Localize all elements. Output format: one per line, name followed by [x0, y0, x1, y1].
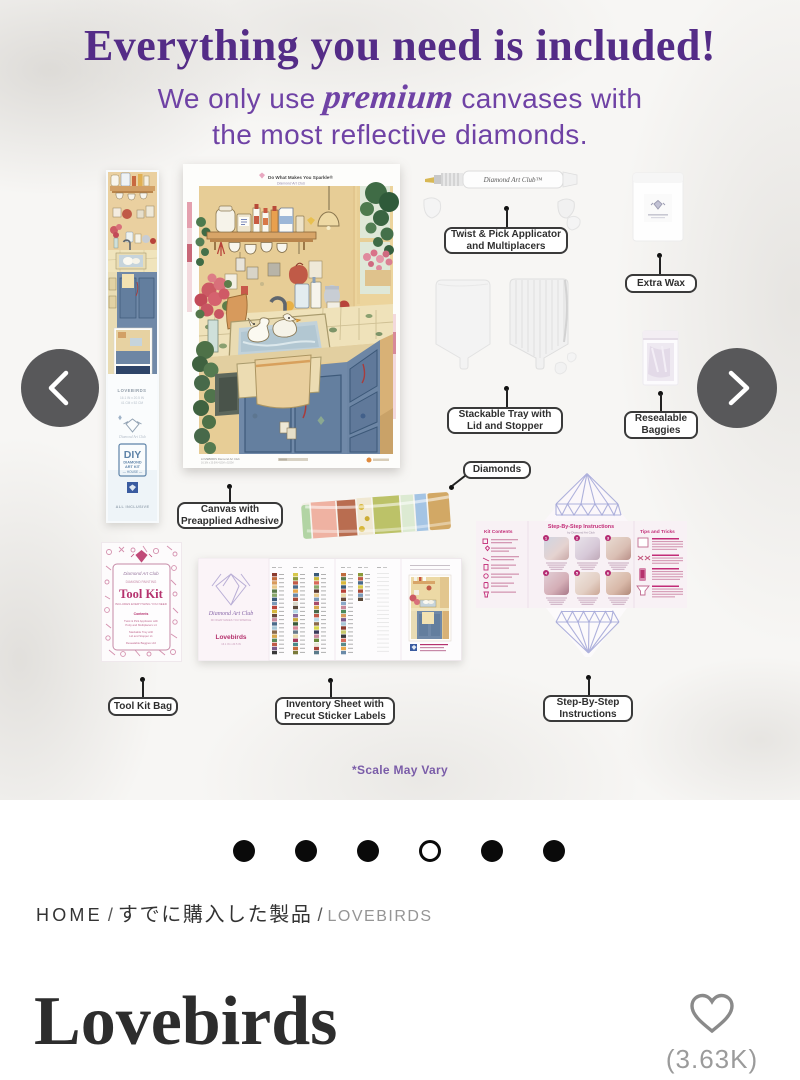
- svg-text:Step-By-Step Instructions: Step-By-Step Instructions: [548, 524, 614, 530]
- svg-text:Diamond Art Club: Diamond Art Club: [118, 435, 146, 439]
- svg-text:DIY: DIY: [124, 449, 142, 461]
- svg-text:LOVEBIRDS Diamond Art Club: LOVEBIRDS Diamond Art Club: [201, 457, 240, 461]
- svg-text:Tool Kit: Tool Kit: [119, 587, 163, 601]
- svg-text:Do What Makes You Sparkle®: Do What Makes You Sparkle®: [268, 174, 333, 180]
- svg-text:ART KIT: ART KIT: [125, 465, 141, 469]
- svg-text:DIAMOND PAINTING: DIAMOND PAINTING: [126, 580, 157, 584]
- svg-text:Contents: Contents: [134, 612, 149, 616]
- svg-text:Kit Contents: Kit Contents: [484, 529, 513, 535]
- svg-text:16.1 IN x 20.5 IN: 16.1 IN x 20.5 IN: [120, 396, 145, 400]
- svg-text:Diamond Art Club: Diamond Art Club: [123, 571, 159, 576]
- svg-text:Lid and Stopper x1: Lid and Stopper x1: [129, 634, 153, 638]
- svg-text:16.1IN x 20.5IN 41CM x 52CM: 16.1IN x 20.5IN 41CM x 52CM: [201, 462, 234, 465]
- svg-text:LOVEBIRDS: LOVEBIRDS: [118, 388, 147, 393]
- svg-text:ALL INCLUSIVE: ALL INCLUSIVE: [116, 505, 150, 509]
- svg-text:Diamond Art Club: Diamond Art Club: [208, 611, 254, 617]
- svg-text:Resealable Baggies x10: Resealable Baggies x10: [126, 641, 157, 645]
- svg-text:DO WHAT MAKES YOU SPARKLE: DO WHAT MAKES YOU SPARKLE: [211, 618, 252, 622]
- svg-text:Diamond Art Club™: Diamond Art Club™: [483, 176, 543, 184]
- svg-text:Lovebirds: Lovebirds: [215, 634, 246, 641]
- svg-text:Putty and Multiplacers x4: Putty and Multiplacers x4: [125, 623, 157, 627]
- svg-text:— HOUSE —: — HOUSE —: [123, 470, 143, 474]
- svg-text:INCLUDES EVERYTHING YOU NEED: INCLUDES EVERYTHING YOU NEED: [115, 602, 168, 606]
- svg-text:16.1 IN x 20.5 IN: 16.1 IN x 20.5 IN: [221, 642, 241, 646]
- svg-text:DIAMOND: DIAMOND: [123, 461, 141, 465]
- svg-text:41 CM x 52 CM: 41 CM x 52 CM: [121, 401, 143, 405]
- svg-text:Diamond Art Club: Diamond Art Club: [277, 182, 305, 186]
- svg-text:by Diamond Art Club: by Diamond Art Club: [567, 531, 595, 535]
- svg-text:Tips and Tricks: Tips and Tricks: [640, 529, 675, 535]
